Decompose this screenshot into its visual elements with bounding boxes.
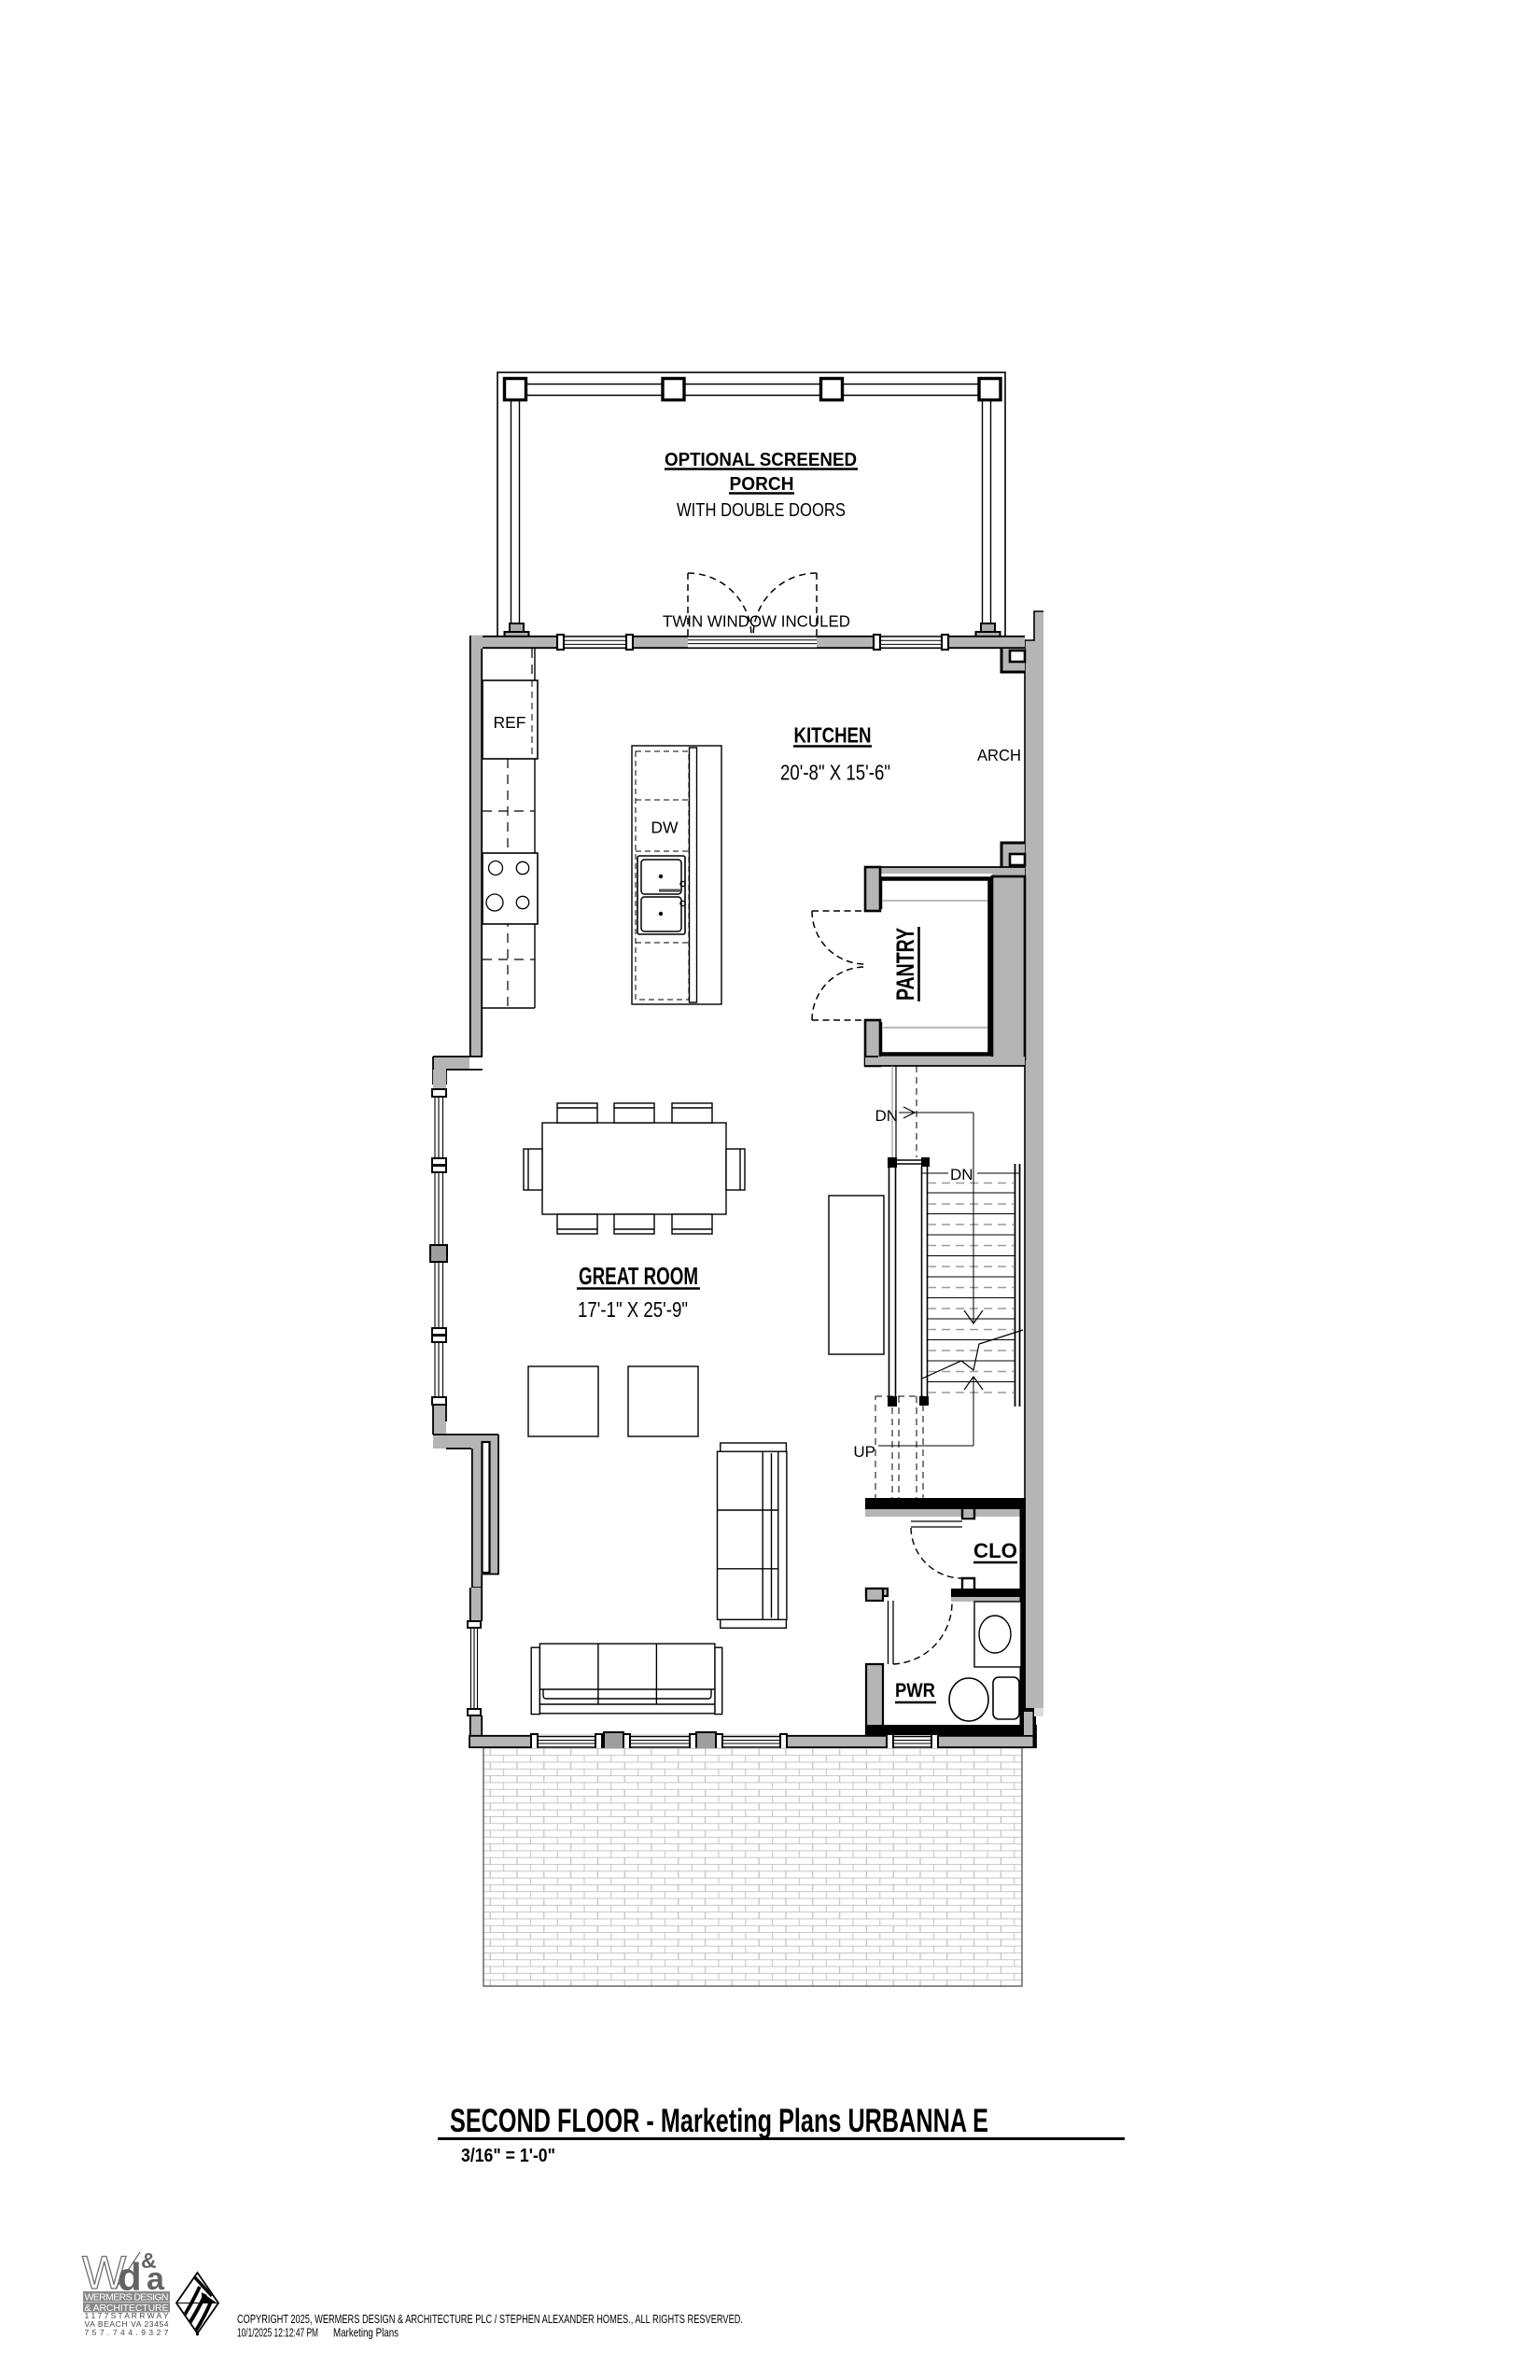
svg-text:3/16" = 1'-0": 3/16" = 1'-0" <box>461 2146 555 2166</box>
svg-text:WITH DOUBLE DOORS: WITH DOUBLE DOORS <box>677 499 846 521</box>
svg-text:SECOND FLOOR - Marketing Plans: SECOND FLOOR - Marketing Plans URBANNA E <box>450 2103 988 2139</box>
svg-text:UP: UP <box>853 1443 875 1461</box>
svg-text:WERMERS DESIGN: WERMERS DESIGN <box>85 2292 169 2303</box>
svg-text:PORCH: PORCH <box>730 473 794 495</box>
svg-text:DW: DW <box>651 819 679 837</box>
svg-text:OPTIONAL SCREENED: OPTIONAL SCREENED <box>665 449 857 470</box>
svg-text:GREAT ROOM: GREAT ROOM <box>579 1262 698 1290</box>
svg-text:ARCH: ARCH <box>977 746 1021 764</box>
svg-text:DN: DN <box>950 1166 973 1183</box>
svg-text:7 5 7 . 7 4 4 . 9 3 2 7: 7 5 7 . 7 4 4 . 9 3 2 7 <box>85 2328 169 2337</box>
svg-text:KITCHEN: KITCHEN <box>794 723 872 748</box>
svg-text:REF: REF <box>494 713 526 732</box>
svg-text:20'-8" X 15'-6": 20'-8" X 15'-6" <box>780 761 890 785</box>
svg-text:10/1/2025 12:12:47 PM: 10/1/2025 12:12:47 PM <box>237 2327 318 2340</box>
svg-text:Marketing Plans: Marketing Plans <box>333 2327 399 2340</box>
svg-text:TWIN WINDOW INCULED: TWIN WINDOW INCULED <box>663 612 850 631</box>
svg-text:PWR: PWR <box>895 1679 935 1701</box>
svg-text:COPYRIGHT 2025, WERMERS DESIGN: COPYRIGHT 2025, WERMERS DESIGN & ARCHITE… <box>237 2313 743 2326</box>
svg-text:CLO: CLO <box>973 1539 1017 1562</box>
svg-text:17'-1" X 25'-9": 17'-1" X 25'-9" <box>578 1297 688 1322</box>
svg-text:PANTRY: PANTRY <box>891 928 919 1001</box>
svg-text:DN: DN <box>875 1107 898 1125</box>
